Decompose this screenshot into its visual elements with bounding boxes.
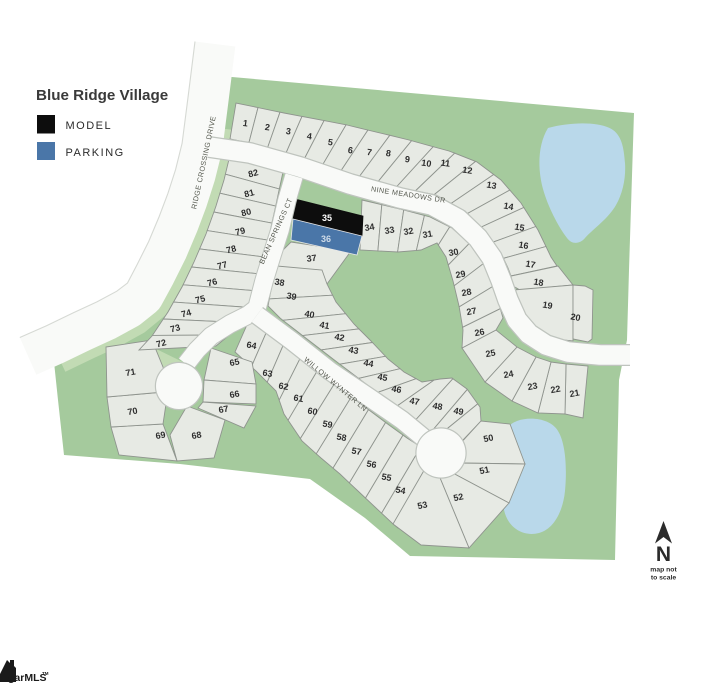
svg-text:50: 50 xyxy=(482,432,494,444)
svg-text:29: 29 xyxy=(455,268,467,280)
svg-text:38: 38 xyxy=(274,276,286,288)
svg-text:35: 35 xyxy=(322,213,332,223)
svg-text:20: 20 xyxy=(570,311,582,323)
svg-text:14: 14 xyxy=(503,200,515,212)
svg-text:47: 47 xyxy=(409,395,421,407)
svg-text:68: 68 xyxy=(191,429,203,441)
svg-text:to scale: to scale xyxy=(651,575,677,582)
svg-text:32: 32 xyxy=(403,225,415,237)
svg-text:34: 34 xyxy=(364,221,376,233)
svg-text:12: 12 xyxy=(462,165,473,176)
svg-text:24: 24 xyxy=(503,368,515,380)
svg-text:49: 49 xyxy=(453,405,465,417)
svg-text:N: N xyxy=(656,543,671,566)
svg-text:MODEL: MODEL xyxy=(66,120,113,132)
svg-text:11: 11 xyxy=(440,158,451,169)
svg-text:10: 10 xyxy=(421,158,432,169)
svg-text:55: 55 xyxy=(381,471,393,483)
svg-text:57: 57 xyxy=(351,445,363,457)
svg-text:65: 65 xyxy=(229,356,241,368)
svg-text:garMLS: garMLS xyxy=(8,672,47,683)
svg-text:18: 18 xyxy=(533,276,545,288)
svg-text:13: 13 xyxy=(486,179,498,191)
svg-text:33: 33 xyxy=(384,224,396,236)
svg-text:69: 69 xyxy=(155,429,167,441)
svg-text:54: 54 xyxy=(395,484,407,496)
svg-text:60: 60 xyxy=(307,405,319,417)
svg-text:25: 25 xyxy=(485,347,497,359)
svg-text:Blue Ridge Village: Blue Ridge Village xyxy=(36,87,168,104)
svg-text:61: 61 xyxy=(293,392,305,404)
svg-text:59: 59 xyxy=(322,418,334,430)
svg-text:21: 21 xyxy=(569,387,581,399)
svg-text:63: 63 xyxy=(262,367,274,379)
svg-text:16: 16 xyxy=(518,239,530,251)
svg-text:40: 40 xyxy=(304,308,316,320)
svg-text:43: 43 xyxy=(348,344,360,356)
svg-text:37: 37 xyxy=(306,253,317,264)
svg-text:51: 51 xyxy=(478,464,490,476)
svg-text:66: 66 xyxy=(229,388,241,400)
svg-text:31: 31 xyxy=(422,228,434,240)
svg-text:23: 23 xyxy=(527,380,539,392)
svg-text:52: 52 xyxy=(452,491,464,503)
svg-text:28: 28 xyxy=(461,286,473,298)
svg-text:41: 41 xyxy=(319,319,331,331)
svg-text:TM: TM xyxy=(42,671,49,676)
svg-text:42: 42 xyxy=(334,331,346,343)
svg-text:71: 71 xyxy=(125,366,137,378)
svg-text:map not: map not xyxy=(650,567,677,574)
svg-text:22: 22 xyxy=(550,383,562,395)
svg-text:64: 64 xyxy=(246,339,258,351)
svg-text:30: 30 xyxy=(448,246,460,258)
svg-text:36: 36 xyxy=(321,234,331,244)
svg-text:17: 17 xyxy=(525,258,537,270)
svg-text:58: 58 xyxy=(336,431,348,443)
svg-text:46: 46 xyxy=(391,383,403,395)
svg-text:48: 48 xyxy=(432,400,444,412)
svg-text:27: 27 xyxy=(466,305,478,317)
svg-text:15: 15 xyxy=(514,221,526,233)
svg-text:45: 45 xyxy=(377,371,389,383)
svg-text:19: 19 xyxy=(542,299,554,311)
svg-text:67: 67 xyxy=(218,403,230,415)
svg-text:26: 26 xyxy=(474,326,486,338)
svg-text:44: 44 xyxy=(363,357,375,369)
svg-text:53: 53 xyxy=(416,499,428,511)
svg-text:70: 70 xyxy=(127,405,139,417)
svg-text:56: 56 xyxy=(366,458,378,470)
svg-text:62: 62 xyxy=(278,380,290,392)
svg-text:39: 39 xyxy=(286,290,298,302)
svg-text:PARKING: PARKING xyxy=(66,147,125,159)
